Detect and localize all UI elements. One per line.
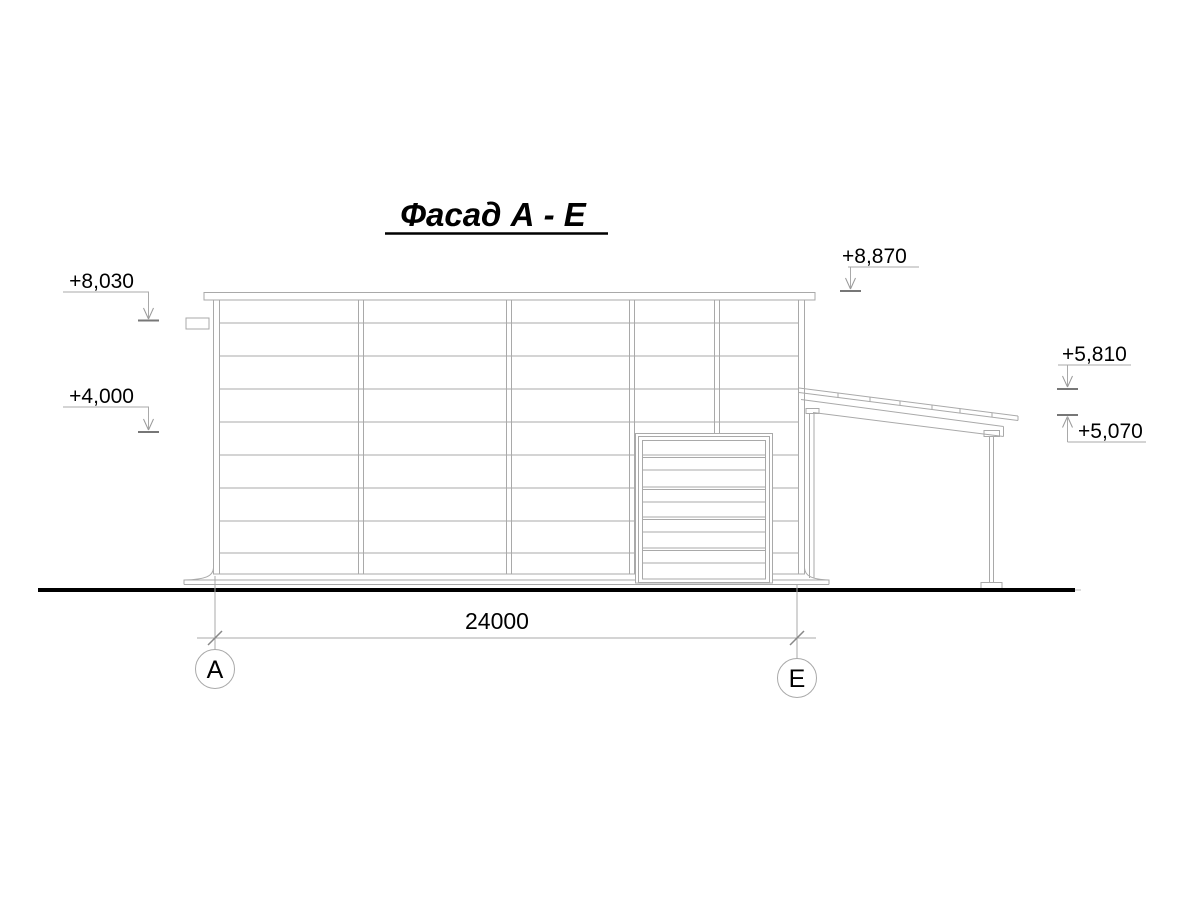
axis-bubble-e: Е [778,659,817,698]
elevation-value: +5,070 [1078,420,1143,443]
elevation-value: +4,000 [69,385,134,408]
dimension-value: 24000 [465,608,529,634]
annex-roof-top-line [799,388,1018,416]
elevation-mark-mid-left: +4,000 [63,385,159,432]
elevation-mark-parapet-right: +8,870 [840,245,919,291]
parapet-cap [204,293,815,301]
annex-canopy [799,388,1018,589]
annex-purlin-line [801,400,1004,427]
elevation-mark-annex-roof-low: +5,070 [1057,415,1146,443]
axis-bubble-a: А [196,650,235,689]
annex-roof-seam-ticks [838,393,992,417]
elevation-mark-parapet-left: +8,030 [63,270,159,321]
footing-flare-left [184,568,214,585]
annex-beam-bottom-line [813,413,1004,437]
facade-drawing-canvas: Фасад А - Е [0,0,1200,900]
drawing-title: Фасад А - Е [385,196,608,234]
elevation-value: +5,810 [1062,343,1127,366]
elevation-value: +8,870 [842,245,907,268]
elevation-value: +8,030 [69,270,134,293]
footing-flare-right [805,568,830,585]
elevation-mark-annex-roof-high: +5,810 [1057,343,1131,389]
axis-letter-e: Е [789,665,806,693]
gutter-outlet [186,318,209,329]
axis-letter-a: А [207,656,224,684]
page-title: Фасад А - Е [400,196,587,233]
annex-roof-bottom-line [799,393,1018,421]
dimension-assembly: 24000 А Е [196,576,817,698]
sectional-gate [636,434,773,584]
gate-outer-frame [636,434,773,584]
